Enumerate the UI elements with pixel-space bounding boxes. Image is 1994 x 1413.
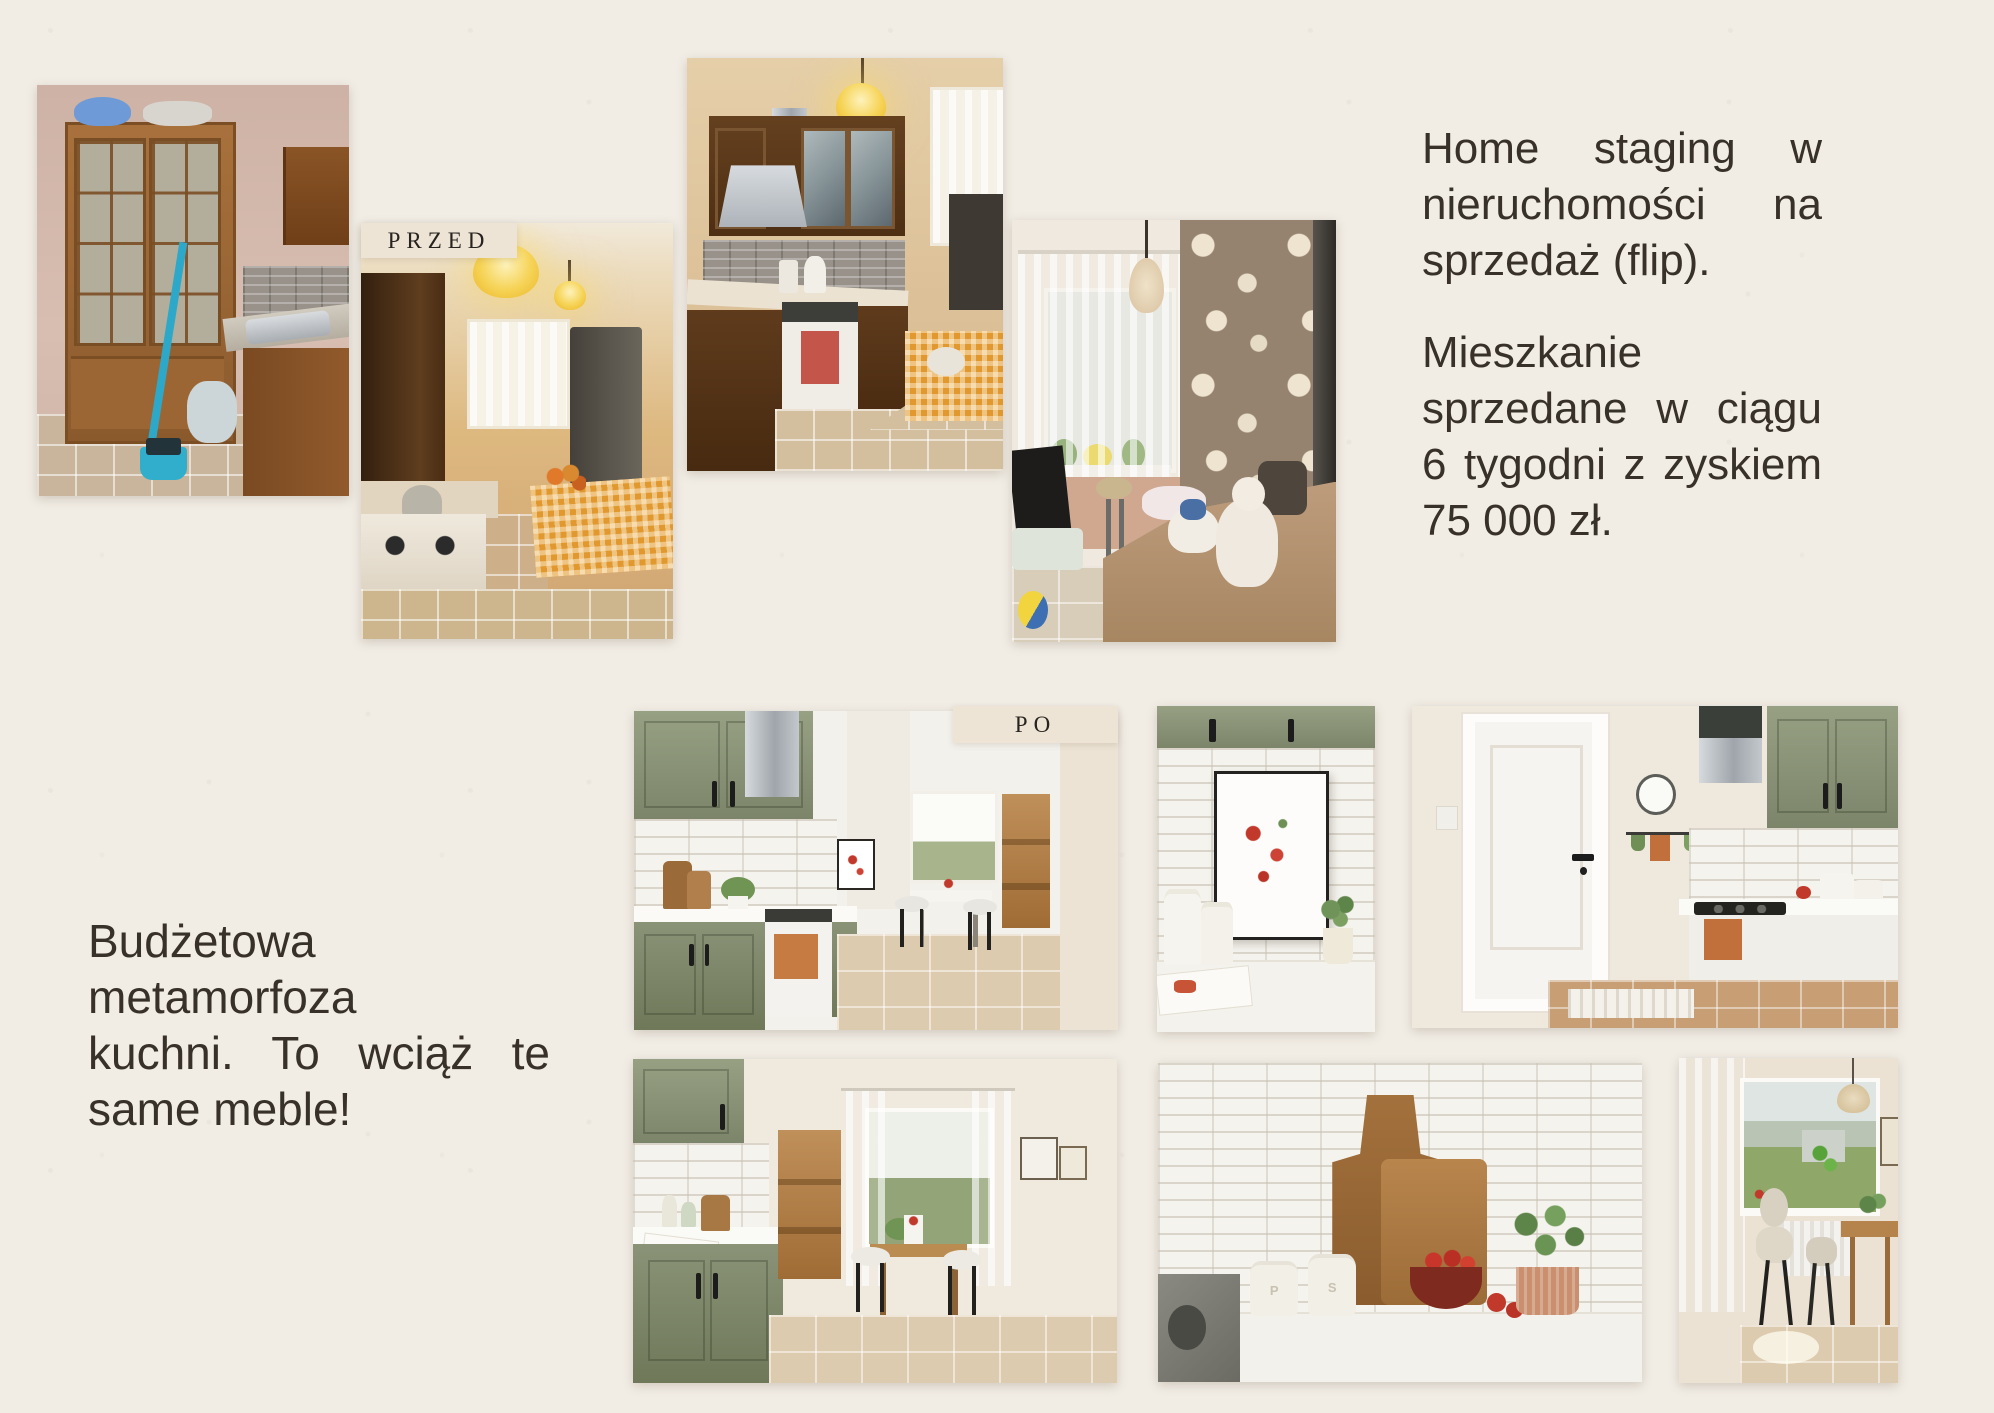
cooktop [765,909,833,922]
sheer-curtain [1679,1058,1745,1312]
chair-leg [972,1266,976,1315]
table-leg [1850,1237,1855,1335]
cabinet-panel [644,721,721,808]
door-lock [1580,867,1587,875]
chair-leg [987,912,991,950]
clutter-on-top [143,101,212,126]
text-line: sprzedaż (flip). [1422,233,1822,289]
gas-grates [370,523,470,569]
photo-after-kitchen-window [633,1059,1117,1383]
window-plant [1806,1130,1841,1189]
plant [1497,1191,1594,1274]
bottle [681,1202,696,1228]
hood-top [1699,706,1762,738]
cooker-hood [719,165,807,227]
cabinet-glass-door [74,138,146,345]
ball [1018,591,1047,629]
cabinet-shelf [778,1227,841,1233]
after-label: PO [953,706,1118,743]
utensil-crock [779,260,798,293]
tomato-branch-art [1231,804,1305,902]
chair-leg [880,1263,884,1312]
shaker-letter: P [1270,1283,1279,1298]
photo-after-kitchen-door [1412,706,1898,1028]
canister [1820,873,1854,899]
wall-clock [1636,774,1676,815]
plush-dog-scarf [1180,499,1206,520]
floor [361,589,673,639]
text-line: nieruchomości na [1422,177,1822,233]
text-line: kuchni. To wciąż te [88,1025,550,1081]
plant [1314,885,1362,934]
shaker-letter: S [1328,1280,1337,1295]
pendant-lamp-small [554,281,585,310]
cabinet-shelf [778,1179,841,1185]
before-label: PRZED [361,223,517,258]
text-line: 6 tygodni z zyskiem [1422,437,1822,493]
cabinet-panel [702,934,754,1015]
coffee-maker [804,256,826,293]
terracotta-pot [1516,1267,1579,1315]
plant-pot [728,896,747,909]
cooker-hood [745,711,798,797]
chair-leg [920,909,924,947]
chair-leg [900,909,904,947]
orange-towel [1650,835,1669,861]
pine-cabinet [1002,794,1050,928]
chair-leg [1758,1259,1770,1334]
fridge [949,194,1003,310]
fruit [542,460,586,493]
plant-pot [1323,928,1354,964]
photo-after-tomato-art [1157,706,1375,1032]
broom-brush [146,438,180,454]
cabinet-panel [1835,719,1888,813]
near-wall [1060,711,1118,1030]
dark-cabinets [361,273,445,514]
text-line: Budżetowa [88,913,550,969]
table-leg [1885,1237,1890,1335]
cabinet-panel [643,1069,729,1135]
canister [1201,902,1234,966]
teddy-bear [1216,499,1278,588]
chair-leg [856,1263,860,1312]
teddy-bear-head [1232,477,1264,511]
pine-cabinet [778,1130,841,1279]
wall-frame [1020,1137,1058,1180]
salt-shaker: S [1308,1254,1356,1315]
photo-before-kitchen-stove [687,58,1003,471]
photo-before-kitchen-cabinet [37,85,349,496]
cabinet-handle [1823,783,1828,809]
hanging-plant [1631,835,1646,851]
table-plant [1854,1188,1889,1221]
cooker-hood [1699,738,1762,783]
text-line: Home staging w [1422,121,1822,177]
tv [1012,445,1071,535]
cabinet-handle [1288,719,1295,742]
cutting-board [701,1195,730,1231]
chair-leg [968,912,972,950]
upper-cabinet [283,147,349,246]
window-with-curtain [467,319,570,429]
door-handle [1572,854,1594,860]
floor [769,1315,1117,1383]
light-switch [1436,806,1457,831]
text-line: metamorfoza [88,969,550,1025]
cabinet-panel [1777,719,1830,813]
photo-after-dining-nook [1679,1058,1898,1383]
pepper-shaker: P [1250,1261,1298,1316]
red-towel [801,331,839,385]
cooktop [782,302,858,323]
bottle [662,1195,677,1227]
tv-table [1012,528,1083,570]
photo-before-room-floral [1012,220,1336,642]
cabinet-handle [730,781,735,807]
burners [1704,905,1777,913]
glass-door [848,128,895,229]
wall-frame [1059,1146,1087,1179]
cabinet-handle [689,944,694,966]
wall-frame [1880,1117,1898,1167]
photo-before-kitchen-lamps [361,223,673,639]
chair-seat [1806,1237,1837,1266]
glass-door [801,128,848,229]
left-text-paragraph: Budżetowa metamorfoza kuchni. To wciąż t… [88,913,550,1137]
cabinet-handle [1209,719,1216,742]
cabinet-panel [710,1260,767,1361]
cabinet-shelf [1002,839,1050,845]
text-line: Mieszkanie [1422,325,1822,381]
cabinet-handle [713,1273,718,1299]
upper-cabinets-sage [1157,706,1375,748]
cabinet-handle [1837,783,1842,809]
lower-cabinets [687,310,782,471]
vase-tulips [904,1215,923,1244]
sunlight-patch [1753,1331,1819,1364]
collage-page: PRZED PO Home staging w nieruchomości na… [0,0,1994,1413]
cutting-board [687,871,711,909]
stool-leg [1106,499,1111,558]
orange-towel [1704,919,1743,961]
right-text-paragraph-1: Home staging w nieruchomości na sprzedaż… [1422,121,1822,289]
canister [1164,889,1201,966]
orange-towel [774,934,818,979]
chair-leg [948,1266,952,1315]
text-line: sprzedane w ciągu [1422,381,1822,437]
checkered-table [905,331,1003,422]
floor [837,934,1060,1030]
red-pepper [1796,886,1811,899]
door-panel [1490,745,1583,951]
text-line: 75 000 zł. [1422,493,1822,549]
red-flowers [939,877,958,890]
photo-after-kitchen-main [634,711,1118,1030]
cabinet-shelf [1002,883,1050,889]
cabinet-handle [720,1104,725,1130]
trash-bags [187,381,237,443]
rug [1568,989,1694,1018]
lamp-cord [1145,220,1148,258]
blue-bag [74,97,130,126]
chair-seat [1756,1227,1793,1263]
cabinet-handle [705,944,710,966]
tomato-art-small [837,839,875,891]
stool [1096,477,1132,498]
book-photo [1174,980,1196,993]
lower-cabinets [243,348,349,496]
lamp-cord [1852,1058,1854,1084]
text-line: same meble! [88,1081,550,1137]
cabinet-handle [712,781,717,807]
window [910,791,998,883]
right-text-paragraph-2: Mieszkanie sprzedane w ciągu 6 tygodni z… [1422,325,1822,549]
burner [1168,1305,1207,1350]
wooden-table [1841,1221,1898,1237]
photo-after-cutting-boards: P S [1158,1063,1642,1382]
tomato [1487,1293,1506,1312]
canister [1854,880,1883,899]
pendant-lamp [1837,1084,1870,1113]
plate [927,347,965,376]
cabinet-handle [696,1273,701,1299]
